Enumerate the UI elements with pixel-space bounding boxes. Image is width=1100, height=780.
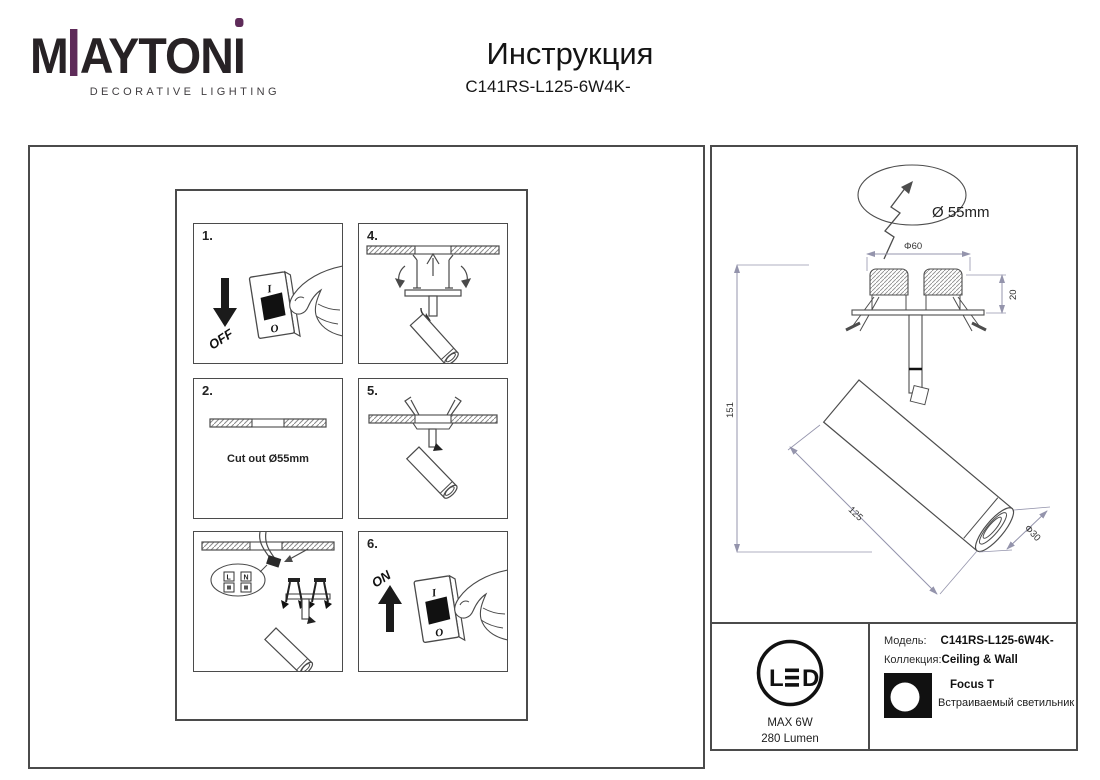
up-arrow-icon — [378, 585, 402, 632]
wire-connector — [266, 555, 281, 568]
collection-value: Ceiling & Wall — [942, 654, 1018, 666]
installed-fixture-illustration — [359, 379, 507, 518]
terminal-zoom-bubble — [211, 564, 265, 596]
collection-row: Коллекция:Ceiling & Wall — [884, 654, 1074, 666]
trim-plate — [405, 290, 461, 296]
cutout-illustration — [194, 379, 342, 518]
bubble-leader — [260, 565, 267, 572]
length125-label: 125 — [846, 505, 865, 524]
step-3-panel: L N — [193, 531, 343, 672]
recessed-mount — [846, 269, 986, 393]
max-power: MAX 6W — [712, 717, 868, 729]
springs-above-ceiling — [405, 397, 461, 415]
collection-label: Коллекция: — [884, 654, 942, 666]
series-row: Focus T Встраиваемый светильник — [884, 673, 1074, 719]
instructions-frame: 1. OFF I O — [28, 145, 705, 769]
depth20-label: 20 — [1008, 289, 1019, 300]
steps-grid-frame: 1. OFF I O — [175, 189, 528, 721]
insert-fixture-illustration — [359, 224, 507, 363]
cutout-caption: Cut out Ø55mm — [194, 453, 342, 465]
page-title: Инструкция — [430, 36, 710, 72]
step-4-panel: 4. — [358, 223, 508, 364]
power-off-illustration: OFF I O — [194, 224, 342, 363]
down-arrow-icon — [213, 278, 237, 327]
step-1-panel: 1. OFF I O — [193, 223, 343, 364]
step-number: 4. — [367, 228, 378, 243]
cutout-dimension-label: Ø 55mm — [932, 204, 990, 221]
lamp-body — [410, 314, 460, 363]
off-label: OFF — [206, 325, 237, 352]
brand-logo: MAYTONI DECORATIVE LIGHTING — [30, 26, 320, 98]
step-number: 1. — [202, 228, 213, 243]
brand-purple-bar-icon — [70, 29, 77, 76]
document-header: Инструкция C141RS-L125-6W4K- — [430, 36, 710, 97]
step-number: 2. — [202, 383, 213, 398]
page-model-number: C141RS-L125-6W4K- — [408, 77, 688, 97]
led-letter-d: D — [802, 665, 819, 692]
led-spec-cell: L D MAX 6W 280 Lumen — [712, 624, 868, 751]
ceiling-cutout — [369, 415, 497, 423]
brand-letter-m: M — [30, 28, 68, 84]
terminal-n-label: N — [244, 575, 249, 582]
height151-label: 151 — [725, 402, 736, 418]
trim-ring — [413, 423, 453, 429]
ext-line — [1014, 507, 1050, 510]
dia60-label: Φ60 — [904, 241, 922, 252]
instruction-sheet: MAYTONI DECORATIVE LIGHTING Инструкция C… — [0, 0, 1100, 780]
up-arrow-icon — [427, 254, 439, 276]
stem — [429, 296, 437, 316]
step-6-panel: 6. ON I O — [358, 531, 508, 672]
power-on-illustration: ON I O — [359, 532, 507, 671]
luminous-flux: 280 Lumen — [712, 733, 868, 745]
led-e-bars — [785, 669, 799, 687]
brand-wordmark: MAYTONI — [30, 26, 300, 81]
series-name: Focus T — [938, 679, 1074, 691]
step-number: 5. — [367, 383, 378, 398]
lamp-body — [824, 380, 1019, 556]
terminal-l-label: L — [227, 575, 232, 582]
wiring-illustration: L N — [194, 532, 342, 671]
model-value: C141RS-L125-6W4K- — [941, 635, 1054, 647]
dia30-label: Φ30 — [1022, 523, 1043, 544]
ext-line — [788, 425, 820, 450]
brand-tagline: DECORATIVE LIGHTING — [30, 86, 280, 98]
downlight-icon — [884, 673, 932, 719]
ceiling-cutout — [367, 246, 499, 254]
led-letter-l: L — [769, 665, 784, 692]
ceiling-cutout — [210, 419, 326, 427]
lamp-body — [265, 628, 315, 671]
led-logo-icon: L D — [755, 638, 825, 708]
stem — [429, 429, 436, 447]
step-2-panel: 2. Cut out Ø55mm — [193, 378, 343, 519]
brand-purple-dot-icon — [235, 18, 243, 27]
model-spec-cell: Модель:C141RS-L125-6W4K- Коллекция:Ceili… — [868, 624, 1080, 751]
swivel-joint — [910, 386, 928, 405]
mount-plate — [286, 594, 330, 599]
ext-line — [940, 551, 977, 594]
spec-table: L D MAX 6W 280 Lumen Модель:C141RS-L125-… — [712, 622, 1076, 751]
technical-panel: Ø 55mm Φ60 20 — [710, 145, 1078, 751]
product-type: Встраиваемый светильник — [938, 697, 1074, 709]
step-5-panel: 5. — [358, 378, 508, 519]
brand-letters: AYTON — [80, 28, 233, 84]
model-row: Модель:C141RS-L125-6W4K- — [884, 635, 1074, 647]
lamp-body — [407, 447, 459, 500]
model-label: Модель: — [884, 635, 927, 647]
step-number: 6. — [367, 536, 378, 551]
stem — [302, 599, 309, 619]
brand-letter-i: I — [233, 31, 245, 81]
dimension-drawing: Ø 55mm Φ60 20 — [712, 147, 1072, 622]
zigzag-arrow-icon — [884, 187, 906, 259]
